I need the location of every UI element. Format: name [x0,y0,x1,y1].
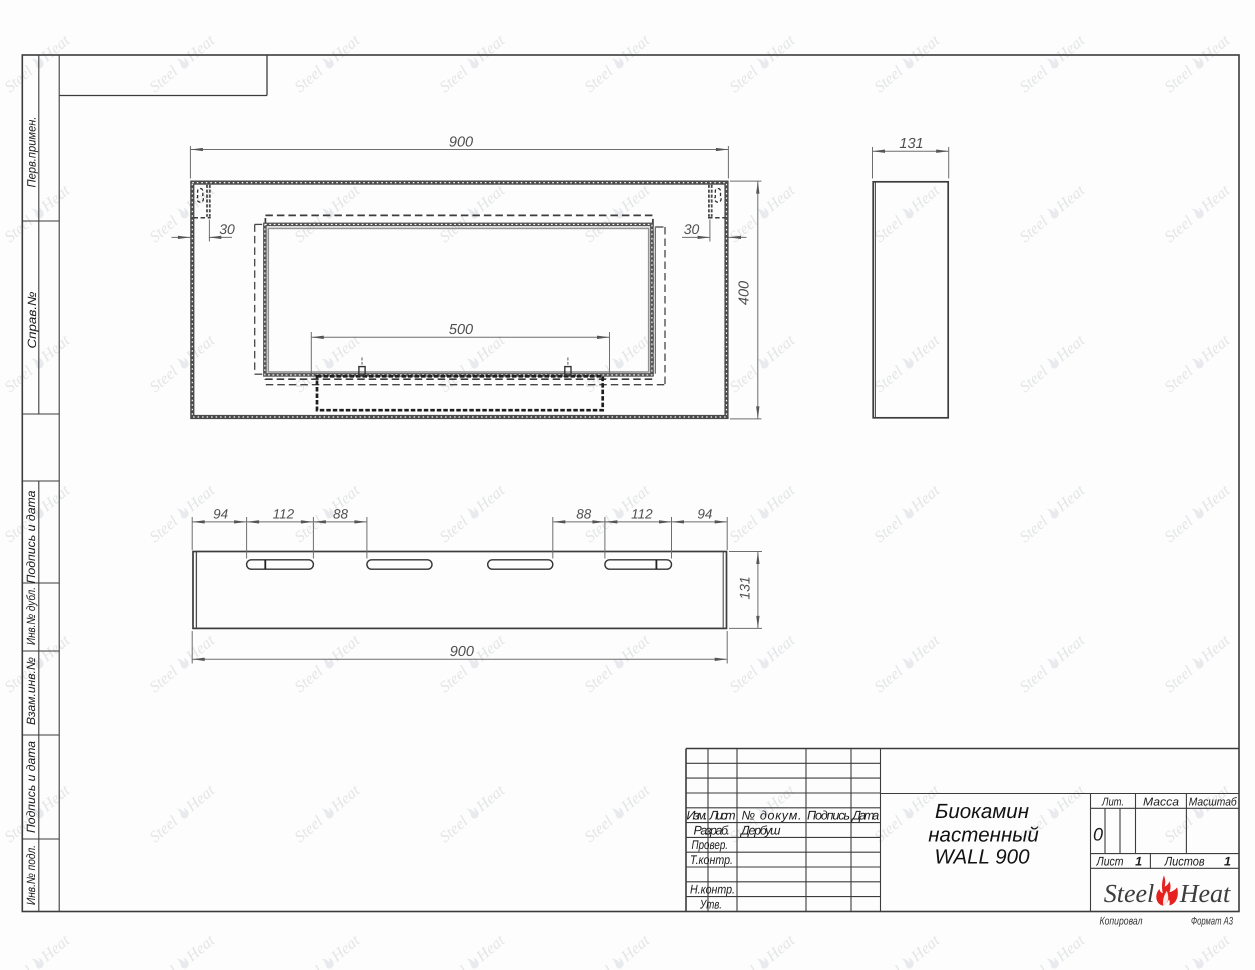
svg-text:131: 131 [899,136,923,152]
svg-text:Разраб.: Разраб. [694,823,731,837]
svg-text:112: 112 [273,507,295,522]
svg-text:Взам.инв.№: Взам.инв.№ [24,657,38,725]
svg-text:88: 88 [333,507,349,522]
svg-text:Дата: Дата [850,809,879,823]
svg-text:1: 1 [1135,854,1142,868]
svg-text:Лист: Лист [1096,854,1124,868]
svg-text:Провер.: Провер. [692,838,729,852]
svg-text:900: 900 [449,135,473,151]
svg-text:500: 500 [449,322,473,338]
svg-text:112: 112 [631,507,653,522]
svg-text:30: 30 [219,221,235,237]
svg-text:Масса: Масса [1143,796,1179,808]
svg-text:Дербуш: Дербуш [739,823,781,837]
svg-text:Подпись и дата: Подпись и дата [24,741,38,833]
svg-text:Листов: Листов [1164,854,1205,868]
svg-text:Лит.: Лит. [1101,796,1124,808]
svg-text:Изм.: Изм. [687,809,708,823]
svg-text:Справ.№: Справ.№ [25,292,39,349]
svg-text:№ докум.: № докум. [742,809,802,823]
svg-text:400: 400 [737,281,753,305]
svg-text:Масштаб: Масштаб [1189,796,1237,808]
svg-text:настенный: настенный [928,824,1038,847]
svg-text:Т.контр.: Т.контр. [690,853,733,867]
svg-text:Heat: Heat [1179,879,1231,908]
svg-text:Копировал: Копировал [1100,916,1143,928]
svg-text:Утв.: Утв. [699,897,722,911]
svg-text:Инв.№ дубл.: Инв.№ дубл. [24,587,38,645]
svg-text:88: 88 [576,507,592,522]
svg-text:900: 900 [450,644,474,660]
svg-text:1: 1 [1224,854,1231,868]
svg-text:Подпись: Подпись [807,809,850,823]
svg-text:Подпись и дата: Подпись и дата [24,490,38,583]
svg-text:Steel: Steel [1104,879,1155,908]
svg-text:WALL 900: WALL 900 [935,846,1031,869]
svg-text:94: 94 [213,507,228,522]
svg-text:94: 94 [697,507,712,522]
svg-text:Биокамин: Биокамин [935,800,1029,823]
svg-text:Н.контр.: Н.контр. [690,883,735,897]
svg-text:30: 30 [684,221,700,237]
svg-text:Перв.примен.: Перв.примен. [25,117,39,188]
svg-text:Инв.№ подл.: Инв.№ подл. [24,845,38,905]
svg-text:Лист: Лист [709,809,736,823]
svg-text:131: 131 [737,576,753,599]
svg-text:Формат А3: Формат А3 [1191,916,1234,928]
svg-text:0: 0 [1093,825,1103,845]
